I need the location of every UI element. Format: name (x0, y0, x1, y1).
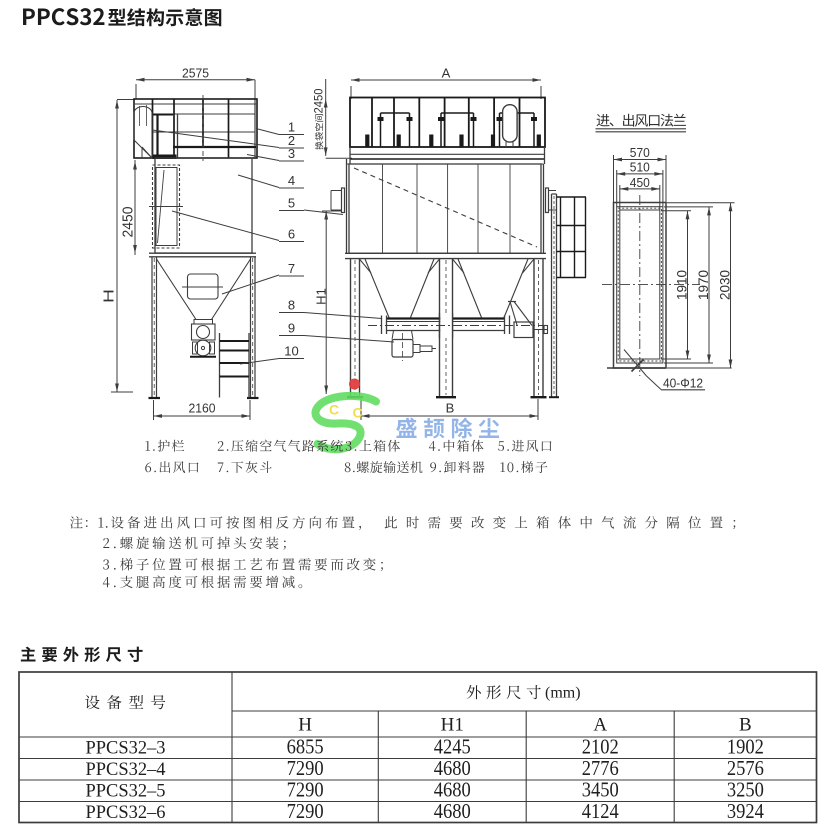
svg-text:H: H (102, 289, 118, 303)
svg-text:4124: 4124 (582, 799, 619, 823)
svg-text:B: B (739, 715, 752, 736)
svg-text:3: 3 (288, 146, 295, 161)
svg-text:3250: 3250 (727, 777, 764, 801)
svg-text:B: B (446, 401, 455, 416)
svg-text:2102: 2102 (582, 734, 619, 758)
svg-text:4680: 4680 (434, 756, 471, 780)
svg-text:4: 4 (288, 173, 295, 188)
svg-text:6855: 6855 (287, 734, 324, 758)
svg-text:450: 450 (630, 175, 650, 190)
svg-text:1970: 1970 (696, 270, 711, 300)
svg-text:10: 10 (284, 344, 298, 359)
svg-text:A: A (593, 715, 607, 736)
svg-text:9: 9 (288, 321, 295, 336)
svg-text:H1: H1 (314, 288, 329, 305)
svg-text:H1: H1 (441, 715, 464, 736)
svg-text:H: H (298, 715, 312, 736)
svg-text:7290: 7290 (287, 756, 324, 780)
svg-text:7290: 7290 (287, 799, 324, 823)
svg-text:PPCS32–6: PPCS32–6 (86, 802, 166, 823)
svg-text:C: C (352, 405, 362, 421)
svg-text:A: A (442, 66, 451, 81)
svg-text:2030: 2030 (718, 270, 733, 300)
svg-text:4680: 4680 (434, 799, 471, 823)
svg-text:3450: 3450 (582, 777, 619, 801)
svg-text:4245: 4245 (434, 734, 471, 758)
svg-text:7290: 7290 (287, 777, 324, 801)
svg-text:2776: 2776 (582, 756, 619, 780)
svg-text:6: 6 (288, 227, 295, 242)
svg-text:PPCS32–5: PPCS32–5 (86, 780, 166, 801)
svg-text:2450: 2450 (312, 88, 326, 113)
svg-text:8: 8 (288, 298, 295, 313)
svg-text:7: 7 (288, 261, 295, 276)
svg-text:5: 5 (288, 196, 295, 211)
svg-text:2575: 2575 (182, 66, 209, 81)
svg-text:2450: 2450 (121, 207, 137, 238)
svg-text:1910: 1910 (675, 270, 690, 300)
svg-text:PPCS32–4: PPCS32–4 (86, 759, 166, 780)
svg-text:40-Φ12: 40-Φ12 (663, 377, 703, 391)
svg-text:570: 570 (630, 145, 650, 160)
svg-text:1902: 1902 (727, 734, 764, 758)
svg-text:2576: 2576 (727, 756, 764, 780)
svg-text:C: C (329, 402, 339, 418)
svg-text:(mm): (mm) (545, 685, 581, 702)
svg-text:2160: 2160 (189, 401, 216, 416)
svg-text:4680: 4680 (434, 777, 471, 801)
svg-text:510: 510 (630, 160, 650, 175)
svg-text:PPCS32–3: PPCS32–3 (86, 737, 166, 758)
svg-text:3924: 3924 (727, 799, 764, 823)
